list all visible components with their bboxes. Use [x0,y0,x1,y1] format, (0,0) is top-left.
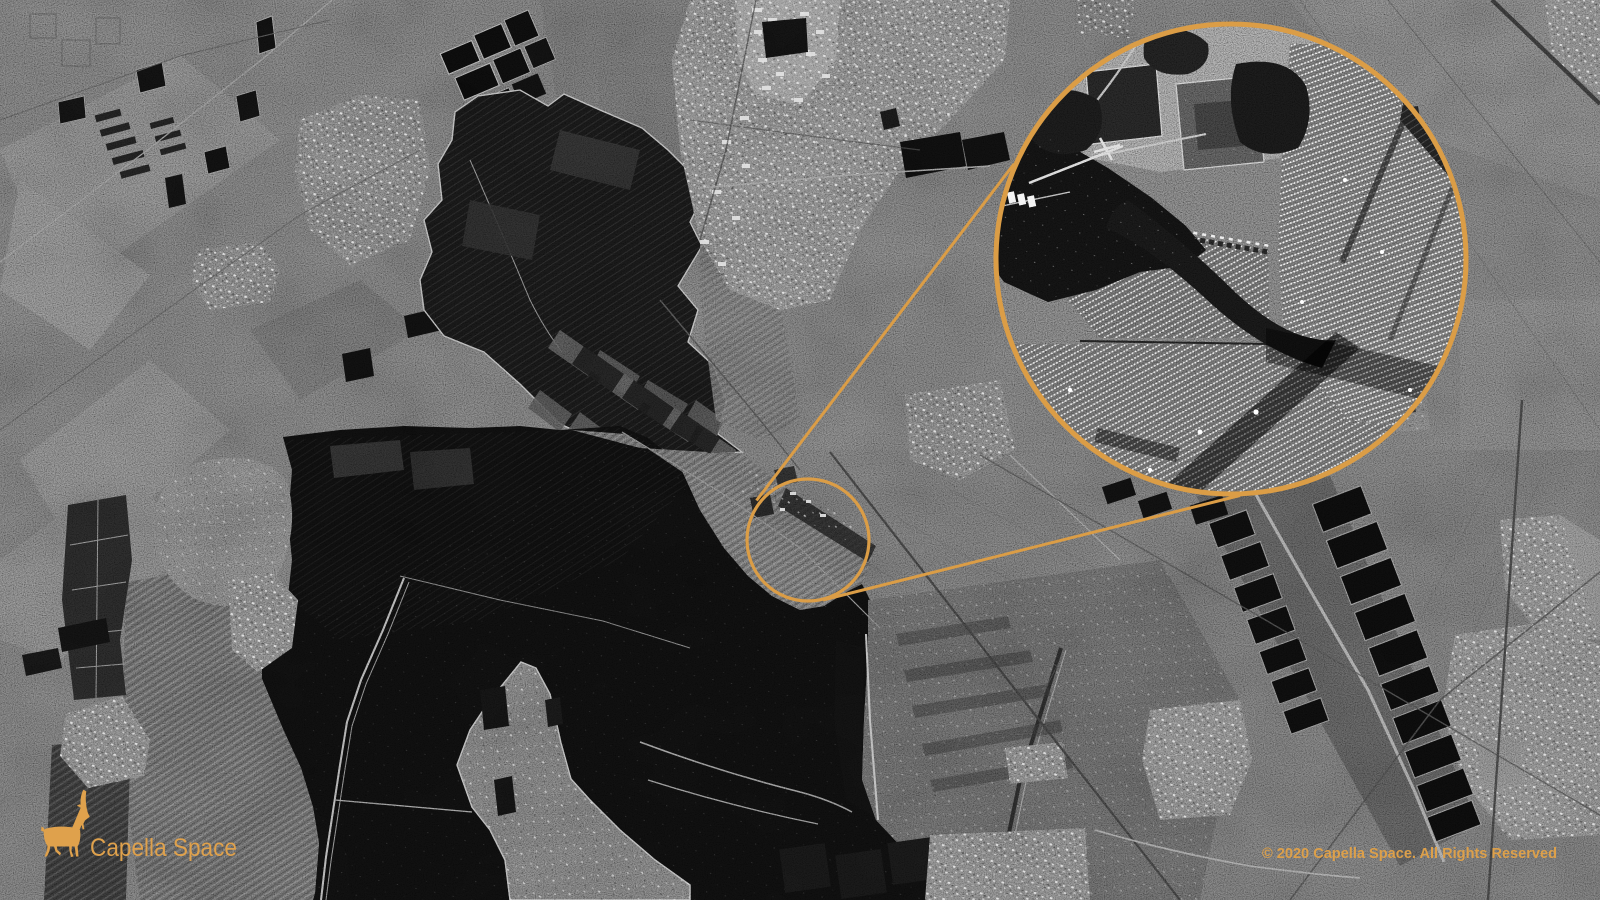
svg-text:Capella Space: Capella Space [90,834,237,862]
svg-text:© 2020 Capella Space. All Righ: © 2020 Capella Space. All Rights Reserve… [1262,846,1557,862]
